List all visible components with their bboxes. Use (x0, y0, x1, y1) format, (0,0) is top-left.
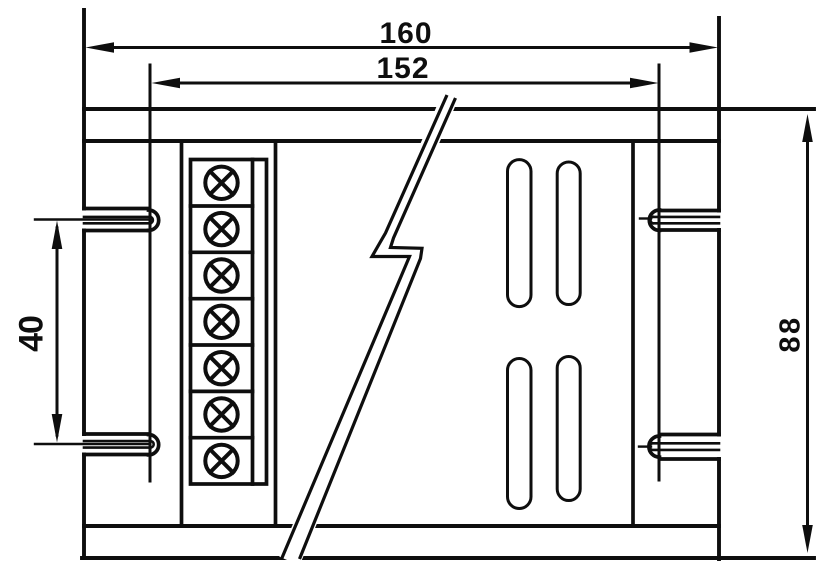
svg-text:152: 152 (376, 52, 429, 85)
svg-text:40: 40 (13, 316, 51, 352)
svg-text:88: 88 (775, 315, 807, 352)
svg-text:160: 160 (379, 17, 432, 50)
